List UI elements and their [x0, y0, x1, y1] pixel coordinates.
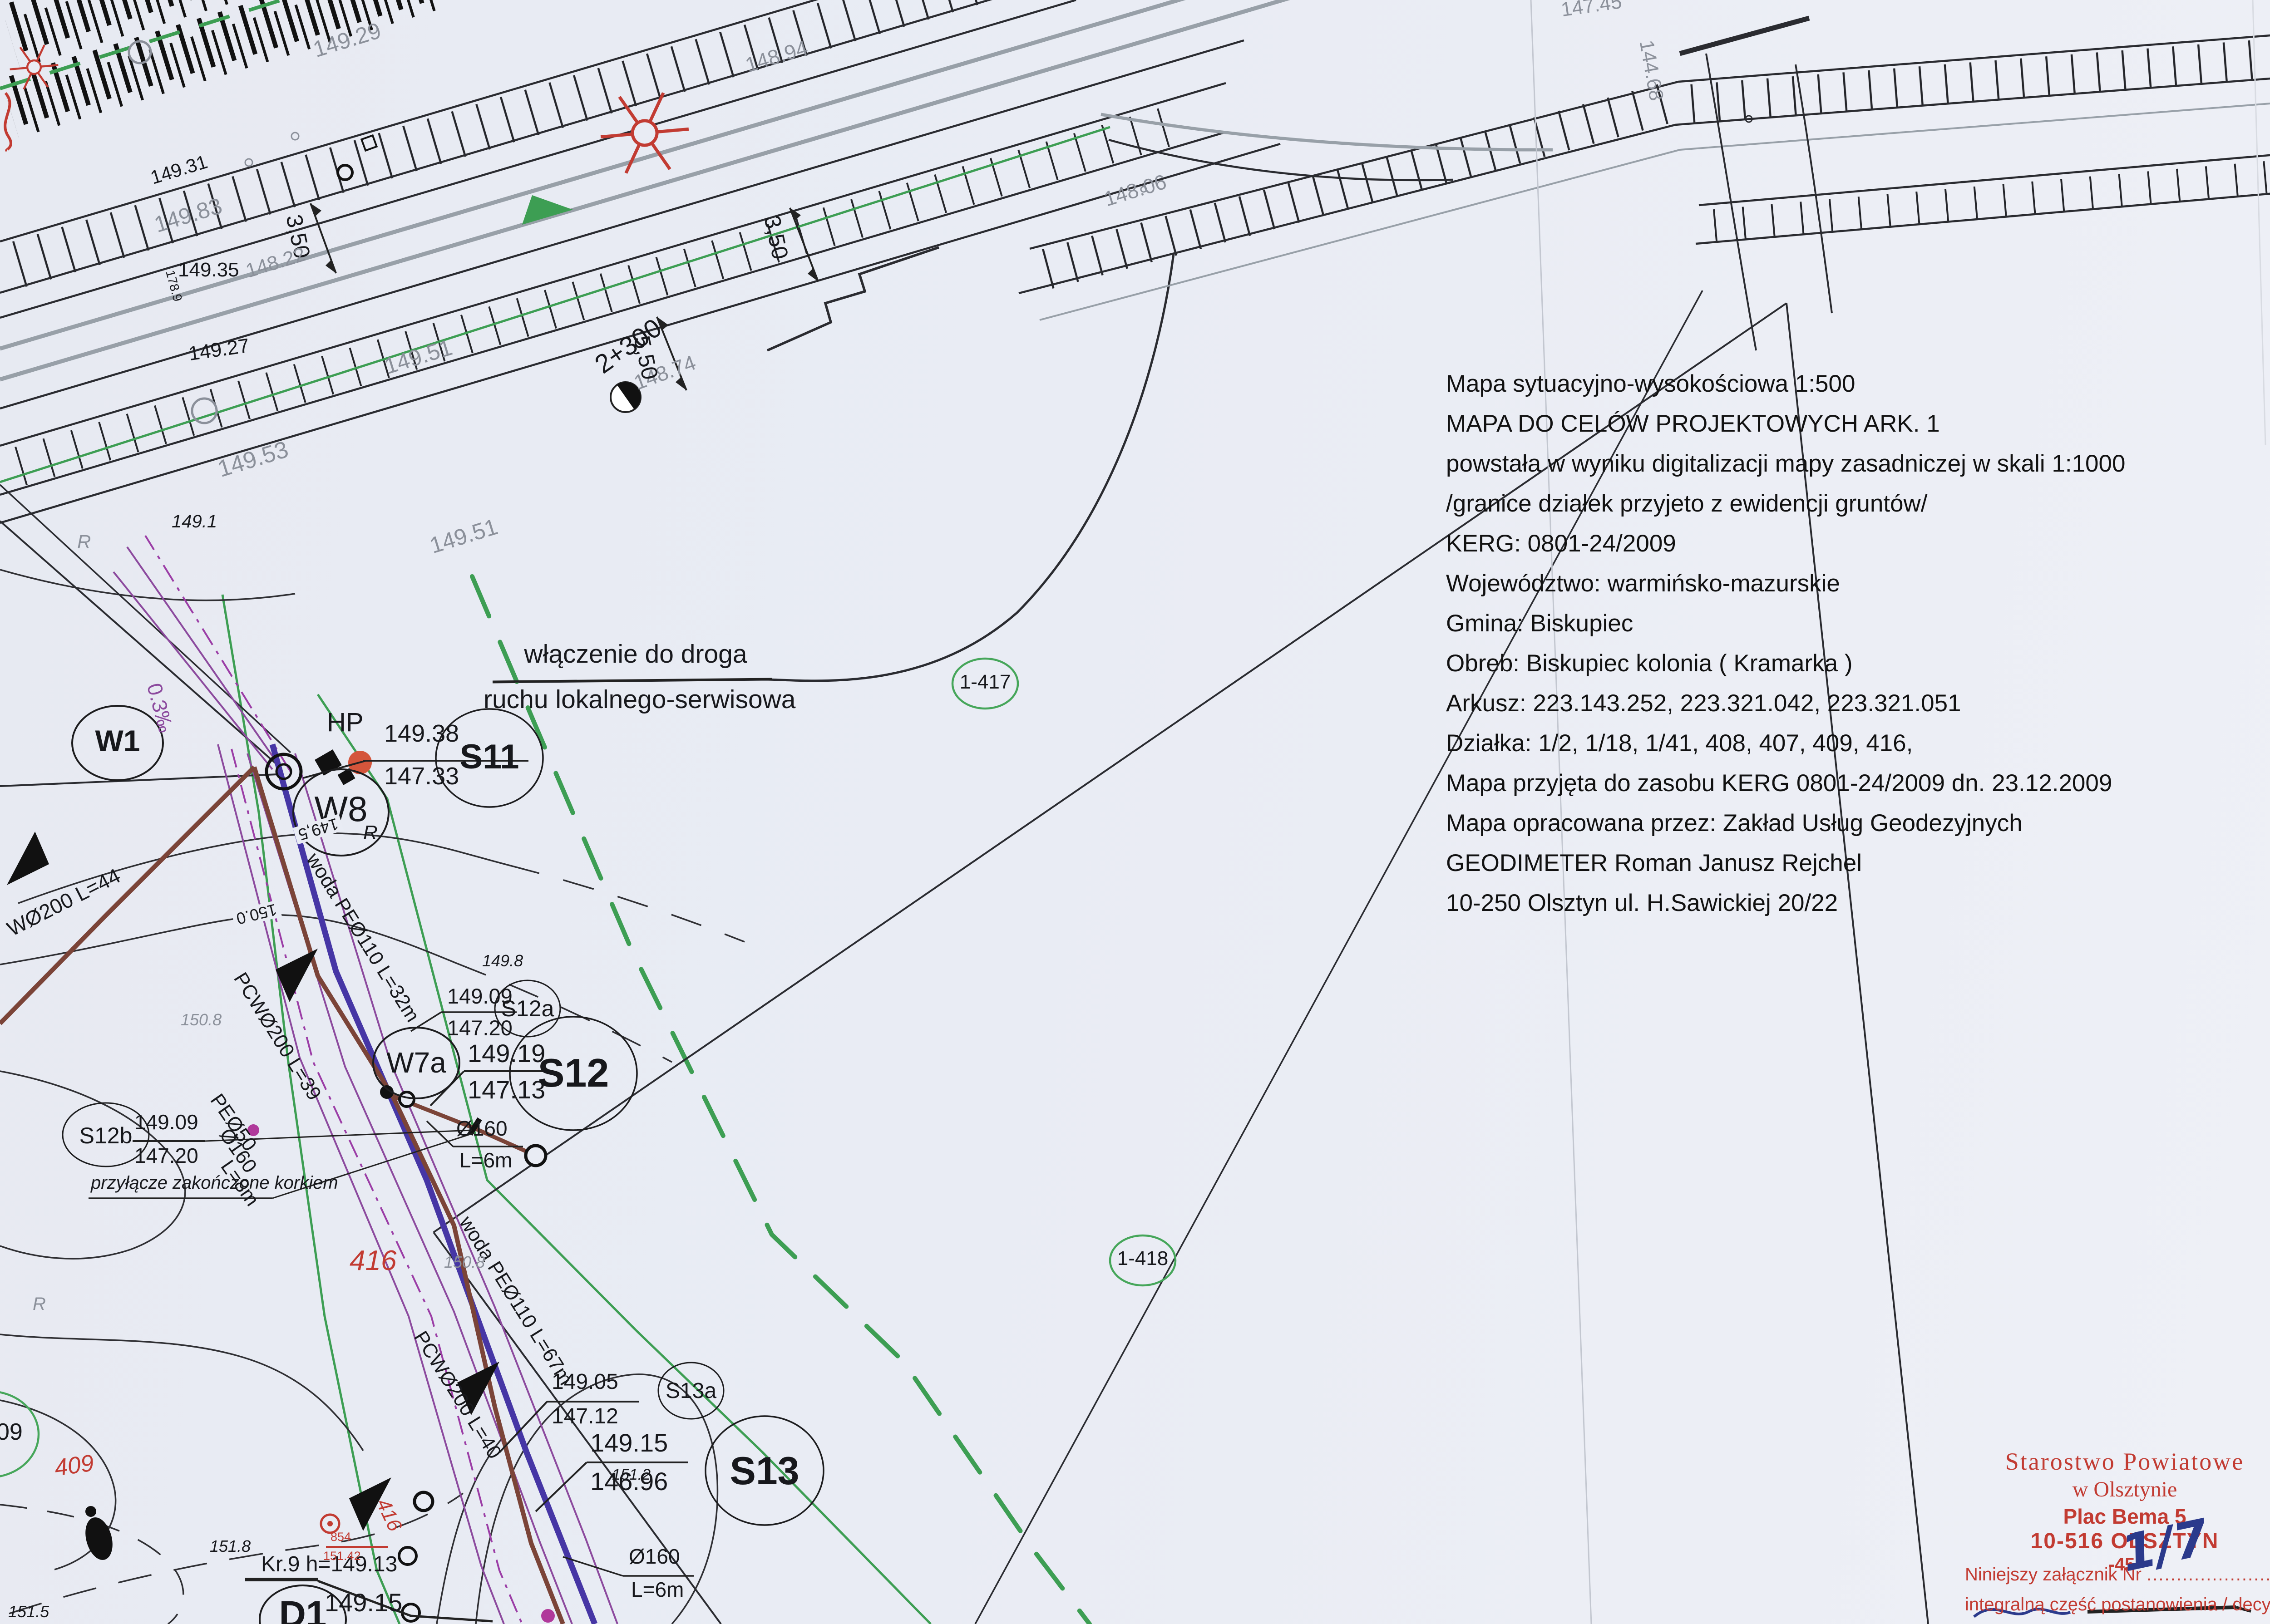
parcel-circle-09: 09	[0, 1420, 23, 1445]
well-d1: D1	[276, 1595, 330, 1624]
info-line: KERG: 0801-24/2009	[1446, 531, 2125, 571]
hydrant-label-hp: HP	[327, 709, 364, 737]
callout-s11-top: 149.38	[384, 721, 459, 747]
info-line: Arkusz: 223.143.252, 223.321.042, 223.32…	[1446, 691, 2125, 731]
callout-s12a-top: 149.09	[447, 985, 513, 1007]
green-arrowhead	[522, 195, 573, 225]
scanned-survey-map-sheet: Mapa sytuacyjno-wysokościowa 1:500 MAPA …	[0, 0, 2270, 1624]
map-info-block: Mapa sytuacyjno-wysokościowa 1:500 MAPA …	[1446, 371, 2125, 930]
ink-blot-small	[85, 1506, 96, 1517]
pipe-d160-6b: Ø160	[629, 1545, 680, 1567]
well-s12: S12	[537, 1052, 610, 1094]
well-s11: S11	[458, 739, 521, 775]
culvert	[1680, 18, 1832, 350]
well-w7a: W7a	[373, 1048, 459, 1078]
spot-149-1: 149.1	[172, 512, 217, 531]
well-s13: S13	[728, 1451, 801, 1491]
info-line: Województwo: warmińsko-mazurskie	[1446, 571, 2125, 611]
attachment-note-line1: Niniejszy załącznik Nr .................…	[1965, 1565, 2270, 1584]
pipe-l6b: L=6m	[631, 1579, 684, 1600]
callout-s13a-bottom: 147.12	[552, 1405, 618, 1428]
callout-s11-bottom: 147.33	[384, 763, 459, 789]
info-line: /granice działek przyjeto z ewidencji gr…	[1446, 491, 2125, 531]
spot-149-35: 149.35	[178, 260, 239, 281]
parcel-circle-418: 1-418	[1111, 1248, 1174, 1269]
spot-151-2: 151.2	[612, 1467, 651, 1483]
pipe-l6a: L=6m	[459, 1149, 512, 1171]
callout-s12b-bottom: 147.20	[134, 1145, 198, 1166]
spot-151-5: 151.5	[8, 1603, 49, 1620]
land-use-r2: R	[363, 822, 378, 843]
info-line: Mapa opracowana przez: Zakład Usług Geod…	[1446, 811, 2125, 851]
spot-150-8a: 150.8	[181, 1011, 222, 1029]
junction-note-line1: włączenie do droga	[490, 641, 781, 668]
info-line: 10-250 Olsztyn ul. H.Sawickiej 20/22	[1446, 891, 2125, 930]
callout-s12b-top: 149.09	[134, 1111, 198, 1133]
well-w1: W1	[93, 725, 143, 757]
callout-s13-top: 149.15	[590, 1430, 668, 1457]
info-line: Gmina: Biskupiec	[1446, 611, 2125, 651]
stamp-line1: Starostwo Powiatowe	[1979, 1449, 2270, 1475]
parcel-circle-417: 1-417	[953, 672, 1017, 693]
land-use-r3: R	[33, 1294, 46, 1314]
info-line: Obreb: Biskupiec kolonia ( Kramarka )	[1446, 651, 2125, 691]
info-line: GEODIMETER Roman Janusz Rejchel	[1446, 851, 2125, 891]
d1-elevation: 149.15	[325, 1590, 402, 1616]
callout-s12a-bottom: 147.20	[447, 1017, 513, 1039]
info-line: Mapa sytuacyjno-wysokościowa 1:500	[1446, 371, 2125, 411]
land-use-r1: R	[77, 532, 91, 552]
spot-149-8: 149.8	[482, 952, 523, 969]
spot-151-8: 151.8	[210, 1538, 251, 1555]
junction-note-line2: ruchu lokalnego-serwisowa	[484, 686, 783, 714]
stamp-line2: w Olsztynie	[1979, 1478, 2270, 1501]
info-line: powstała w wyniku digitalizacji mapy zas…	[1446, 451, 2125, 491]
info-line: MAPA DO CELÓW PROJEKTOWYCH ARK. 1	[1446, 411, 2125, 451]
attachment-note-line2: integralną część postanowienia / decyzji	[1965, 1595, 2270, 1614]
benchmark-elev: 151.42	[323, 1550, 361, 1562]
benchmark-id: 854	[331, 1530, 351, 1543]
connection-note: przyłącze zakończone korkiem	[91, 1173, 338, 1192]
parcel-416: 416	[350, 1246, 396, 1275]
parcel-409: 409	[53, 1451, 96, 1481]
info-line: Mapa przyjęta do zasobu KERG 0801-24/200…	[1446, 771, 2125, 811]
attachment-prefix: Niniejszy załącznik Nr	[1965, 1565, 2142, 1585]
well-s12b: S12b	[74, 1124, 138, 1148]
callout-s12-top: 149.19	[468, 1040, 545, 1067]
pipe-d160-6a: Ø160	[456, 1117, 508, 1139]
spot-150-8b: 150.8	[444, 1254, 485, 1271]
callout-s12-bottom: 147.13	[468, 1077, 545, 1103]
info-line: Działka: 1/2, 1/18, 1/41, 408, 407, 409,…	[1446, 731, 2125, 771]
well-s13a: S13a	[659, 1380, 723, 1403]
